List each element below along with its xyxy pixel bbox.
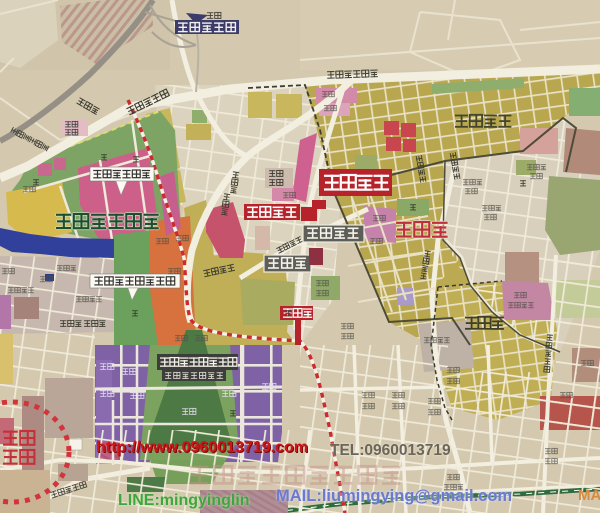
svg-text:MAIL:liumingying@gmail.com: MAIL:liumingying@gmail.com bbox=[276, 487, 512, 505]
svg-text:LINE:mingyinglin: LINE:mingyinglin bbox=[118, 492, 250, 509]
svg-text:TEL:0960013719: TEL:0960013719 bbox=[330, 442, 451, 459]
svg-text:http://www.0960013719.com: http://www.0960013719.com bbox=[96, 439, 308, 456]
svg-text:MA: MA bbox=[578, 487, 600, 504]
